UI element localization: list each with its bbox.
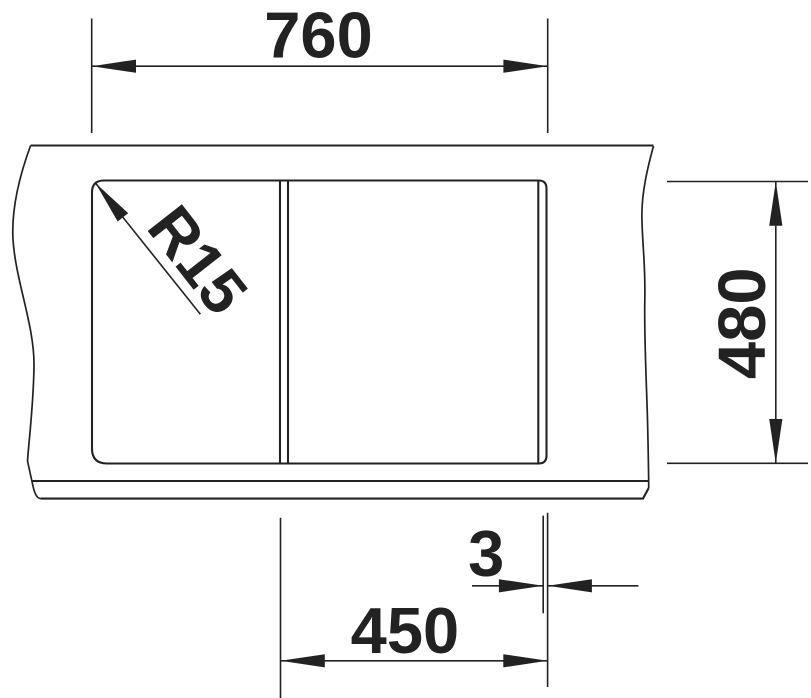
svg-text:480: 480 bbox=[705, 267, 780, 379]
svg-text:760: 760 bbox=[264, 0, 372, 72]
svg-text:450: 450 bbox=[351, 594, 459, 667]
svg-text:3: 3 bbox=[468, 517, 504, 590]
